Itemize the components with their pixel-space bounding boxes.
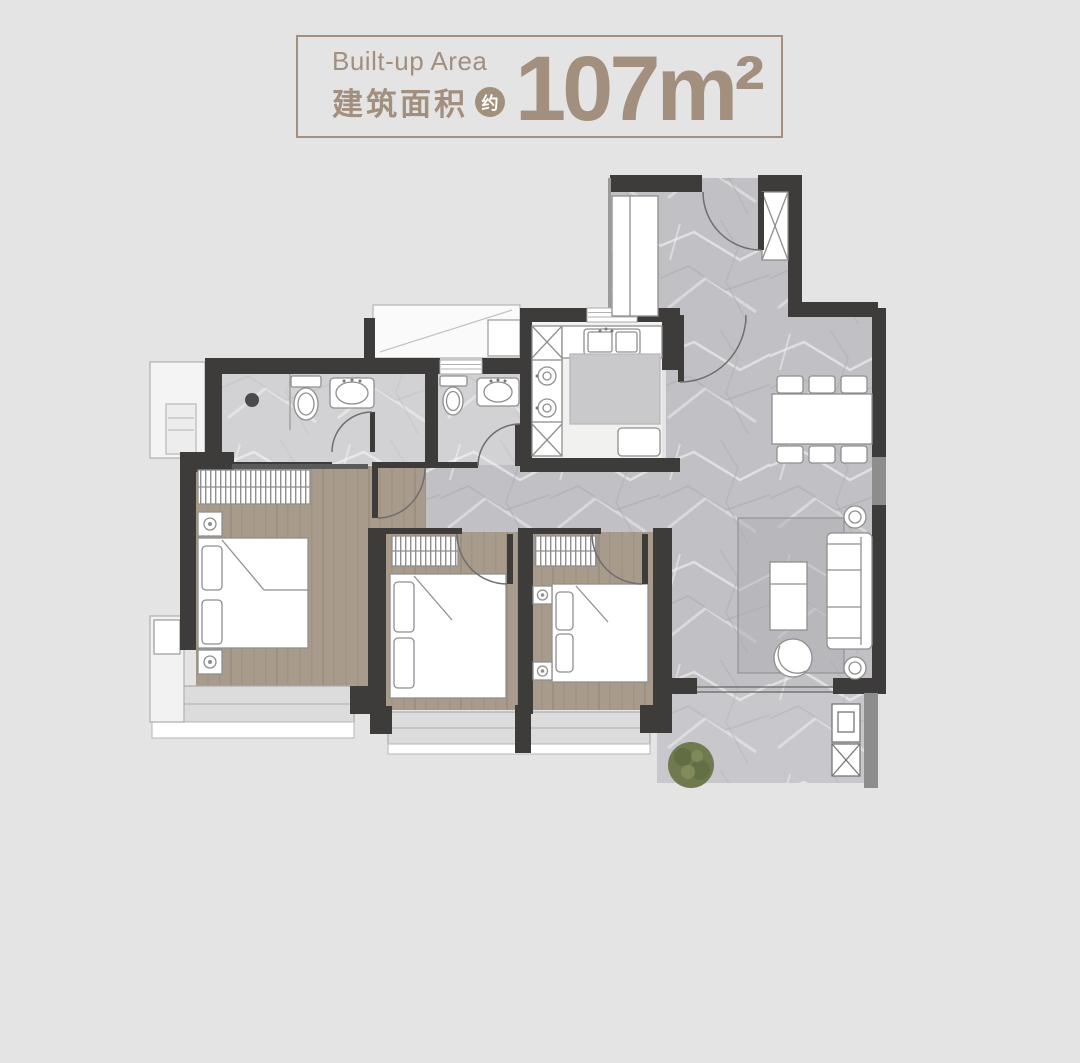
floorplan-canvas: [0, 0, 1080, 1063]
master-wardrobe: [198, 470, 310, 504]
master-nightstand-top: [198, 512, 222, 536]
bedroom2-bed: [390, 574, 506, 698]
bathroom2-window: [440, 360, 482, 374]
shower-drain: [245, 393, 259, 407]
island-counter: [570, 354, 660, 424]
wash-basin-2: [477, 378, 519, 406]
area-value-row: 107m²: [515, 54, 761, 126]
master-nightstand-bottom: [198, 650, 222, 674]
side-table-top: [844, 506, 866, 528]
bedroom3-wardrobe: [535, 536, 597, 566]
utility-nook-cabinet: [488, 320, 520, 356]
hallway-floor: [426, 465, 668, 532]
kitchen-sink: [584, 328, 640, 356]
bedroom3-nightstand-bottom: [533, 662, 552, 680]
area-value: 107: [515, 38, 657, 140]
master-bed: [198, 538, 308, 648]
stove: [532, 360, 562, 422]
fridge: [618, 428, 660, 456]
bedroom3-bed: [552, 584, 648, 682]
area-title-card: Built-up Area 建筑面积 约 107m²: [296, 35, 783, 138]
washer-unit: [832, 744, 860, 776]
approx-badge: 约: [475, 87, 505, 117]
living-side-window: [872, 457, 886, 505]
sofa: [827, 533, 872, 649]
coffee-table: [770, 562, 807, 630]
built-up-area-label-en: Built-up Area: [332, 47, 505, 77]
built-up-area-label-zh: 建筑面积: [332, 79, 468, 124]
plant: [668, 742, 714, 788]
shoe-cabinet: [612, 196, 658, 316]
coat-closet: [762, 192, 788, 260]
wash-basin-1: [330, 378, 374, 408]
bedroom2-wardrobe: [392, 536, 458, 566]
accent-chair: [774, 639, 812, 677]
balcony-side-wall: [864, 693, 878, 788]
bedroom3-nightstand-top: [533, 586, 552, 604]
area-title-labels: Built-up Area 建筑面积 约: [332, 47, 505, 124]
water-heater: [832, 704, 860, 742]
side-table-bottom: [844, 657, 866, 679]
master-bay-outer-sill: [152, 722, 354, 738]
dining-table: [772, 394, 872, 444]
area-unit: m²: [657, 38, 761, 140]
